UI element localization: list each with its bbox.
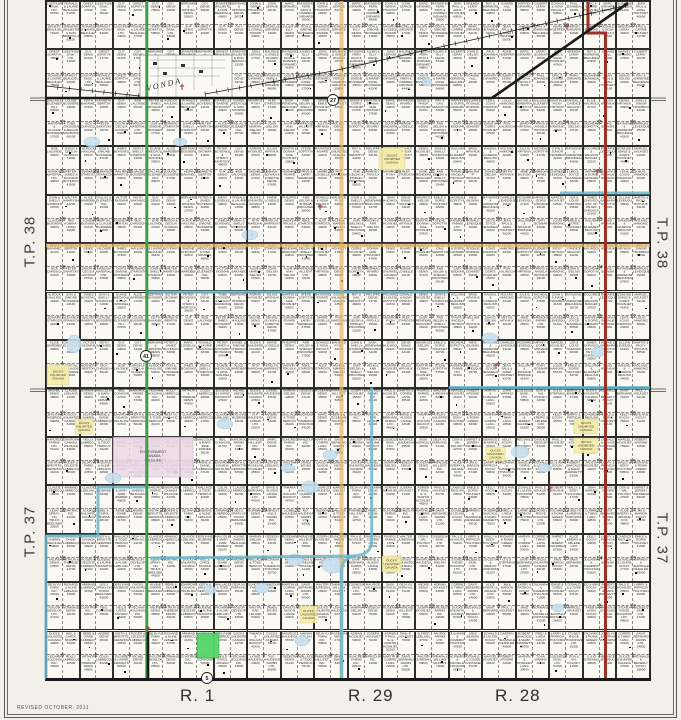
parcel-owner-name: BERNARD & RHONDA DENIS50900 [181,2,196,19]
parcel-owner-name: SUZANNE JEANNEAU34600 [584,74,599,84]
parcel-assessed-value: 52400 [365,448,381,451]
parcel-owner-name: EMILE & DORIS HOUNJET27200 [349,99,364,112]
parcel-quarter: MARC GIRNARD41600 [517,50,533,73]
farmstead-dot [537,571,539,573]
parcel-owner-name: ALICE WARDBERG43400 [181,267,196,277]
parcel-quarter: MAURICE SIELSKI35600 [416,341,432,364]
parcel-quarter: MICHELLE GIRNARD30800 [248,74,264,97]
parcel-assessed-value: 45900 [450,326,465,329]
section: DOLORES & WELDON BANGET20700ROSAIRE LEVE… [583,292,617,340]
parcel-owner-name: DALLAS & ELIZABETH HILL25300 [96,196,112,209]
parcel-quarter: HOLLY LABRECQUE40500 [63,655,79,678]
parcel-assessed-value: 31700 [584,106,599,109]
farmstead-dot [491,20,493,22]
parcel-owner-name: ENVIRONMENT CANADA WILDLIFE44700 [163,486,179,499]
parcel-quarter: ALVIN & MARIAN SIELSKI42600 [331,219,347,242]
section: ROSAIRE LEVESQUE35900HARVEY & DORIS GIRN… [516,340,550,388]
parcel-assessed-value: 46200 [398,177,414,180]
parcel-owner-name: DENIS & ROSELINE HOUNJET45300 [248,461,263,474]
farmstead-dot [93,478,95,480]
parcel-quarter: SAINT BERNARD FARMS LTD.34800 [633,632,649,655]
parcel-quarter: CHARLES LEVESQUE51400 [550,316,566,339]
section: REGINALD & BEVERLY KOCAY53700CANDICE REG… [516,437,550,485]
parcel-owner-name: JOSEPH HOUNJET45300 [349,389,364,399]
farmstead-dot [528,424,530,426]
parcel-quarter: ALVIN & ANN SIELSKI40300 [282,267,298,290]
farmstead-dot [92,214,94,216]
parcel-assessed-value: 49400 [349,445,364,448]
parcel-owner-name: WALLACE & TODD HEROUX52400 [215,583,230,596]
farmstead-dot [167,153,169,155]
parcel-assessed-value: 64500 [215,274,230,277]
parcel-quarter: RICHARD & ALINE LEBLANC57500 [163,632,179,655]
parcel-assessed-value: 52600 [264,590,280,593]
parcel-assessed-value: 52500 [550,203,565,206]
parcel-quarter: MARC LOISELLE62800 [181,341,197,364]
parcel-owner-name: LOUISE BUSSIERE47400 [163,170,179,180]
parcel-owner-name: ANN SIELSKI & SHELLY PROCHERA46300 [298,99,314,116]
parcel-quarter: ANN SIELSKI & SHELLY PROCHERA53400 [432,170,448,193]
parcel-quarter: BOB LALONDE59600 [47,147,63,170]
parcel-quarter: PAUL E. HOUNJET40500 [383,389,399,412]
parcel-assessed-value: 25300 [215,87,230,90]
parcel-assessed-value: 37000 [617,665,632,668]
parcel-owner-name: DEJA VU FARM INC.33000 [148,632,163,645]
section: JULIANNA & CAMERON THACHUK47500MIKE BILI… [449,631,483,679]
section: DALLAS & ELIZABETH HILL53000LOUISE BUSSI… [46,98,80,146]
parcel-owner-name: DONALD & LOUISE KOCAY69100 [483,632,498,645]
parcel-quarter: ALVINE SHERIN BEAULIEU36200 [148,583,164,606]
parcel-quarter: JOHN & JUNIOR TROMBICKI52600 [633,244,649,267]
parcel-owner-name: JOHN HUCHKOWSKI26100 [383,341,398,351]
parcel-owner-name: ROBERT SHACKLETON & MARK MARGETTS76200 [483,509,498,526]
parcel-owner-name: WALLY & EDDY HOLYNSKI48500 [450,413,465,426]
parcel-assessed-value: 43400 [432,61,448,64]
parcel-assessed-value: 43600 [163,35,179,38]
parcel-quarter: PAUL E. HOUNJET54200 [450,535,466,558]
parcel-assessed-value: 28700 [197,645,213,648]
parcel-assessed-value: 47500 [600,496,616,499]
parcel-assessed-value: 58000 [47,419,62,422]
parcel-owner-name: PAUL E. HOUNJET14000 [584,461,599,471]
parcel-quarter: RENE & DIANE LABRECQUE31700 [114,509,130,532]
parcel-quarter: DON & VAL POLISKY37400 [416,535,432,558]
parcel-quarter: JULIANNA & CAMERON THACHUK54200 [499,461,515,484]
parcel-owner-name: JOHN SIELSKI34700 [264,267,280,277]
parcel-quarter: DONALD & LOUISE KOCAY57100 [566,583,582,606]
parcel-owner-name: DALLAS & ELIZABETH HILL25800 [63,341,79,354]
parcel-quarter: JOHN LEPAGE48100 [264,2,280,25]
section: EMILE & DORIS HOUNJET27200MARTIN & DONNA… [348,98,382,146]
parcel-owner-name: CLAUDE LABRECQUE46200 [130,438,146,448]
parcel-owner-name: ROLAND HAMONIC20700 [633,219,649,229]
parcel-assessed-value: 32100 [231,419,247,422]
parcel-owner-name: JERLYNNE MCBRIDE20700 [215,632,230,642]
parcel-owner-name: BOB LALONDE37000 [148,219,163,229]
parcel-assessed-value: 48800 [315,129,330,132]
parcel-assessed-value: 17700 [248,57,263,60]
parcel-assessed-value: 25000 [483,426,498,429]
parcel-owner-name: NORMAND & MICHELLE FONTAINE41500 [533,606,549,623]
parcel-quarter: PARADISE HILL ENT. INC.35900 [298,535,314,558]
parcel-assessed-value: 34200 [349,593,364,596]
parcel-assessed-value: 75900 [148,9,163,12]
farmstead-dot [574,13,576,15]
parcel-owner-name: LEA & LOUIS HAMONIC33400 [483,244,498,257]
farmstead-dot [243,394,245,396]
parcel-owner-name: SUZANNE JEANNEAU54100 [483,25,498,35]
parcel-owner-name: JARRET & JEREMY VALDREUIL69100 [633,486,649,499]
parcel-owner-name: DON & SIMONE BUSSIERE36800 [114,267,129,280]
parcel-quarter: ROGOR DEVELOP. LTD.37100 [47,606,63,629]
farmstead-dot [622,478,624,480]
parcel-assessed-value: 40500 [383,396,398,399]
parcel-owner-name: ALICE WARDBERG40000 [163,147,179,157]
parcel-quarter: 101074108 SASK. LTD.14000 [114,25,130,48]
parcel-owner-name: RAYMOND FERN & DARREN GIRNARD44400 [398,74,414,91]
parcel-quarter: MARC GIRNARD50400 [600,2,616,25]
farmstead-dot [139,67,141,69]
farmstead-dot [504,522,506,524]
parcel-assessed-value: 76100 [517,471,532,474]
farmstead-dot [321,248,323,250]
parcel-quarter: SAINT BERNARD FARMS LTD.28500 [349,558,365,581]
parcel-owner-name: DUCKS UNLIMITED CANADA45700 [181,558,196,571]
parcel-owner-name: STEVE SOPOTYK32600 [298,293,314,303]
parcel-owner-name: ALROCK HAULING58700 [81,147,96,157]
parcel-quarter: LEA & LOUIS HAMONIC35600 [566,196,582,219]
parcel-quarter: DOLORES & WELDON BANGET32200 [584,147,600,170]
parcel-quarter: ANN SIELSKI & SHELLY PROCHERA40500 [432,316,448,339]
parcel-quarter: LIONEL HAUDEGAND50200 [365,461,381,484]
parcel-owner-name: DANIEL & SIMONE CHRUSCH42500 [181,244,196,257]
parcel-owner-name: LEO & JOYCE JEANNEAU50500 [566,316,582,329]
parcel-assessed-value: 61200 [432,523,448,526]
parcel-quarter: DAVID & ALISON LANGE44300 [282,606,298,629]
parcel-assessed-value: 37400 [465,471,481,474]
parcel-quarter: PAUL E. HOUNJET57900 [349,535,365,558]
parcel-assessed-value: 54100 [365,154,381,157]
farmstead-dot [520,646,522,648]
parcel-quarter: MARVIN & CORRIE LANG53000 [517,535,533,558]
parcel-assessed-value: 56200 [349,378,364,381]
parcel-owner-name: WILLIAM P. HRYNIUK42200 [465,316,481,329]
parcel-owner-name: JOHN & SHELLY STAROSTA36300 [231,219,247,232]
parcel-assessed-value: 45700 [432,351,448,354]
parcel-assessed-value: 76100 [298,665,314,668]
parcel-owner-name: ANN SIELSKI & SHELLY PROCHERA40500 [432,316,448,333]
parcel-quarter: WALLACE & TODD HEROUX40900 [197,486,213,509]
farmstead-dot [642,86,644,88]
parcel-assessed-value: 50100 [533,35,549,38]
parcel-assessed-value: 26100 [383,348,398,351]
parcel-assessed-value: 48000 [365,19,381,22]
parcel-quarter: PARADISE HILL ENT. LTD.38300 [298,122,314,145]
parcel-quarter: MARC DENIS44600 [383,99,399,122]
parcel-assessed-value: 76200 [633,371,649,374]
parcel-owner-name: PAUL JEANNEAU47200 [483,50,498,60]
parcel-owner-name: HANSON MATERIALS LTD.46000 [47,170,62,183]
parcel-owner-name: MARIE LOISELLE52100 [315,170,330,180]
parcel-owner-name: ADRIAN HOUNJET42000 [383,364,398,374]
parcel-quarter: JOHN & JUNIOR TROMBICKI33400 [633,99,649,122]
parcel-owner-name: NORMAN RIVARD34600 [365,267,381,277]
parcel-assessed-value: 42800 [63,593,79,596]
parcel-assessed-value: 52100 [197,300,213,303]
parcel-assessed-value: 40600 [114,500,129,503]
parcel-assessed-value: 42800 [432,254,448,257]
parcel-owner-name: PHILIPPE DENIS31700 [365,293,381,303]
parcel-assessed-value: 48100 [584,590,599,593]
parcel-quarter: MARCEL HOUNJET41100 [566,606,582,629]
parcel-quarter: EMILE & PHILIP HOUNJET52100 [416,99,432,122]
parcel-quarter: SUNCREST FARMS INC.82500 [349,655,365,678]
parcel-owner-name: RANDAL & CANDICE REGUSH42200 [566,244,582,257]
parcel-quarter: DEJA VU FARM INC.33000 [148,632,164,655]
section: 101155032 SASK. LTD.50500DON & VAL POLIS… [516,388,550,436]
parcel-quarter: ALEXANDRA GRANISCH23300 [63,316,79,339]
parcel-owner-name: ROSAIRE LEVESQUE35900 [517,341,532,351]
parcel-owner-name: MICHELLE GIRNARD32800 [315,74,330,84]
parcel-owner-name: JERLYNNE MCBRIDE32100 [231,413,247,423]
parcel-quarter: MARIAN SIELSKI53700 [298,632,314,655]
parcel-quarter: COLIN LABRECQUE50100 [114,438,130,461]
parcel-assessed-value: 75900 [517,520,532,523]
parcel-quarter: TUBB CROSSDALE & MEGAN MACDONALD69100 [63,122,79,145]
section: MICHEAL SOPOTYK56000MIKE BILINSKI42900HA… [449,340,483,388]
parcel-assessed-value: 35900 [416,426,431,429]
parcel-owner-name: MICHELLE GIRNARD33900 [264,25,280,35]
parcel-assessed-value: 52600 [163,662,179,665]
section: ROSEANNE DENIS45600PARADISE HILL ENT. IN… [314,388,348,436]
parcel-assessed-value: 34200 [499,445,515,448]
parcel-quarter: DENIS EMILE HOUNJET39200 [315,244,331,267]
parcel-assessed-value: 56000 [499,274,515,277]
parcel-owner-name: ROGOR DEVELOP. LTD.56200 [130,558,146,571]
parcel-assessed-value: 32200 [215,493,230,496]
parcel-owner-name: MARIE LOISELLE44800 [264,196,280,206]
parcel-owner-name: 101155032 SASK. LTD.54700 [550,655,565,668]
parcel-quarter: DEJA VU FARM INC.47800 [81,461,97,484]
parcel-assessed-value: 46000 [47,181,62,184]
section: DONALD & LOUISE KOCAY69100DARREN & JEANH… [482,631,516,679]
parcel-owner-name: HOLLY LABRECQUE55000 [81,438,96,448]
parcel-owner-name: MARVIN & CORRIE LANG25000 [483,413,498,430]
parcel-quarter: ALFRED LEBLANC47700 [416,632,432,655]
parcel-assessed-value: 70300 [465,545,481,548]
parcel-quarter: ROBERT KRUSHE34000 [499,655,515,678]
parcel-quarter: ALVIN & ANN SIELSKI30300 [365,219,381,242]
parcel-quarter: BOB LALONDE37000 [148,219,164,242]
parcel-quarter: PAUL J. HOUNJET55300 [499,606,515,629]
parcel-assessed-value: 42200 [197,593,213,596]
parcel-quarter: JULIEN & ELLY DENIS40000 [282,25,298,48]
parcel-owner-name: RENE & DIANE LABRECQUE48200 [63,535,79,548]
parcel-quarter: JULIANNA & CAMERON THACHUK47500 [450,632,466,655]
section: MARTIN & RICKY HRYNIUK45900RANDAL & CAND… [549,243,583,291]
parcel-quarter: GUY DENIS43600 [114,99,130,122]
parcel-owner-name: WILLIAM & ROSALIE BODNAR44100 [517,219,532,236]
parcel-owner-name: BOB LALONDE54100 [114,364,129,374]
parcel-assessed-value: 43400 [63,396,79,399]
farmstead-dot [591,285,593,287]
parcel-quarter: PETER JAMES & RICHARD BOYENKO41500 [63,170,79,193]
section: ALROCK HAULING41800DON & SIMONE BUSSIERE… [46,292,80,340]
parcel-owner-name: MAURICE & GISELE RIVARD38300 [398,50,414,63]
parcel-assessed-value: 48600 [617,620,632,623]
parcel-assessed-value: 37100 [148,542,163,545]
parcel-assessed-value: 25500 [248,593,263,596]
parcel-owner-name: ALEX STAROSTA48300 [315,219,330,229]
parcel-quarter: WANZOURA INC.52600 [264,583,280,606]
section: CLAUDE LEBLANC52500JERLYNNE MCBRIDE35600… [180,534,214,582]
parcel-owner-name: PARADISE HILL ENT. INC.38900 [248,438,263,451]
parcel-quarter: GEDEON DENIS37100 [298,389,314,412]
parcel-quarter: JAMES CHRUSCH EST. OF PETER CHRUSCH25000 [584,341,600,364]
parcel-owner-name: JOHN & VERNA THURSTON49800 [248,2,263,15]
section: RAYMOND & ADRIENNE BEAUREGARD49100CHARLE… [482,340,516,388]
parcel-assessed-value: 45900 [550,254,565,257]
parcel-quarter: WILLIAM & ROSALIE BODNAR43900 [600,316,616,339]
parcel-owner-name: ANN GELSKI & SHIRLEY PROCHERA40300 [432,122,448,139]
parcel-assessed-value: 52500 [450,274,465,277]
parcel-quarter: ED & ANN KOCAY84500 [550,461,566,484]
parcel-owner-name: DON & VAL POLISKY27000 [617,486,632,499]
parcel-quarter: KRISTAL RAE LELAND55700 [331,558,347,581]
parcel-quarter: MARVIN & CHARLENE LANG30900 [517,655,533,678]
section: ARMAND LABRECQUE41300LES-2 SPRAY-ON TRUC… [180,631,214,679]
parcel-quarter: JULIUS HRYNIUK36100 [600,244,616,267]
parcel-assessed-value: 52100 [315,177,330,180]
parcel-owner-name: ROSEANNE DENIS47000 [331,632,347,642]
parcel-owner-name: BRAD HRYNIUK47000 [600,364,616,374]
parcel-quarter: DENIS HOUNJET40900 [416,293,432,316]
parcel-assessed-value: 47600 [617,57,632,60]
parcel-owner-name: JOANNE HILL48300 [465,74,481,84]
farmstead-dot [207,255,209,257]
parcel-assessed-value: 27200 [130,300,146,303]
parcel-owner-name: MARC GIRNARD32800 [416,2,431,12]
parcel-assessed-value: 41400 [298,568,314,571]
parcel-owner-name: DONALD & LOUISE KOCAY62100 [533,461,549,474]
parcel-assessed-value: 30900 [197,80,213,83]
parcel-quarter: MALCOLM & MARY JANE ZIMMER25100 [215,535,231,558]
parcel-quarter: LOUISE BUSSIERE34300 [47,364,63,387]
section: MARVIN & CORRIE LANG53000CORRIE & TIMMY … [516,534,550,582]
parcel-quarter: SUZANNE JEANNEAU54100 [483,25,499,48]
parcel-owner-name: JIM & MARION KOCAY48100 [633,509,649,522]
parcel-owner-name: VICTOR SKOMAR43000 [81,341,96,351]
parcel-quarter: ALICE WARDBERG27200 [130,293,146,316]
farmstead-dot [453,182,455,184]
section: MICHEL DENIS48800CLAUDE LEBLANC43400JERL… [46,388,80,436]
farmstead-dot [475,12,477,14]
parcel-assessed-value: 43000 [349,84,364,87]
farmstead-dot [393,543,395,545]
parcel-quarter: ARTHUR & THERESE DENIS44700 [63,558,79,581]
section: BERNARD & RHONDA DENIS58000PETER & JAMES… [147,340,181,388]
parcel-quarter: MIKE BILINSKI40800 [465,632,481,655]
parcel-assessed-value: 43600 [633,471,649,474]
parcel-quarter: LARRY & PATRICIA HOLYNSKI70300 [465,535,481,558]
parcel-quarter: JULIANNA & CAMERON THACHUK20700 [264,558,280,581]
parcel-quarter: PARADISE HILL ENT. INC.76800 [398,606,414,629]
farmstead-dot [559,77,561,79]
farmstead-dot [190,199,192,201]
parcel-assessed-value: 40900 [416,300,431,303]
parcel-assessed-value: 79500 [566,423,582,426]
parcel-owner-name: ANDRE DENIS31500 [130,509,146,519]
parcel-quarter: HARMONIE FARMS LTD.41300 [450,364,466,387]
parcel-assessed-value: 49100 [633,206,649,209]
parcel-quarter: CORRIE & TIMMY LANG40800 [584,509,600,532]
parcel-quarter: OREST SOPATYK46000 [197,25,213,48]
section: DONALD & NOVA PROULX64500MAURICE PYSH628… [314,195,348,243]
parcel-quarter: DONALD & LOUISE KOCAY17700 [617,558,633,581]
section: MARC GIRNARD43700RAYMOND FERN DION & DAR… [281,1,315,49]
parcel-quarter: SASK. AGRICULTURE61200 [383,583,399,606]
parcel-owner-name: RONALD & LAURIE BEAULIEU46300 [148,244,163,257]
parcel-assessed-value: 54700 [231,80,247,83]
parcel-assessed-value: 57500 [383,448,398,451]
parcel-quarter: MARIE LOISELLE44800 [264,196,280,219]
parcel-assessed-value: 44300 [533,400,549,403]
parcel-quarter: MARTIAL & CLAUDE BUSSIERE41800 [96,219,112,242]
parcel-assessed-value: 54600 [398,157,414,160]
parcel-owner-name: ADRIEN P. PAUL E. & MARTIN HOUNJET51200 [383,632,398,652]
farmstead-dot [257,7,259,9]
parcel-assessed-value: 62800 [81,423,96,426]
parcel-quarter: RAYMOND RIVARD30300 [315,293,331,316]
parcel-assessed-value: 25300 [315,12,330,15]
parcel-assessed-value: 48900 [450,203,465,206]
parcel-assessed-value: 33000 [517,300,532,303]
parcel-owner-name: SUNCREST FARMS INC.25500 [248,583,263,596]
farmstead-dot [108,139,110,141]
parcel-assessed-value: 32600 [197,374,213,377]
parcel-quarter: CLAUDE LEBLANC53400 [163,438,179,461]
parcel-assessed-value: 41800 [96,229,112,232]
parcel-quarter: KENNETH BERTON47200 [163,316,179,339]
farmstead-dot [361,350,363,352]
parcel-quarter: DUCKS UNLIMITED CANADA39100 [264,632,280,655]
parcel-assessed-value: 25800 [432,19,448,22]
parcel-quarter: KELLY KOCAY34200 [499,438,515,461]
parcel-owner-name: WILLIAM & ROSALIE BODNAR45600 [465,244,481,257]
parcel-owner-name: EMILE & DORIS HOUNJET48200 [432,196,448,209]
parcel-owner-name: ROSEANNE DENIS50500 [416,461,431,471]
parcel-assessed-value: 36100 [130,662,146,665]
section: JOHN LEPAGE23300MAURICE & GISELE RIVARD3… [382,49,416,97]
parcel-assessed-value: 28100 [96,520,112,523]
parcel-assessed-value: 84500 [432,590,448,593]
parcel-assessed-value: 52400 [264,523,280,526]
parcel-owner-name: WALLY & EDDY HOLYNSKI59500 [617,461,632,474]
parcel-owner-name: DARREN & JEANHALEA DENGLER36400 [550,606,565,623]
parcel-owner-name: WALLACE & TODD HEROUX26100 [282,413,297,426]
parcel-owner-name: WANZOURA INC.14000 [365,655,381,665]
parcel-quarter: PARADISE HILL ENT. INC.58100 [315,655,331,678]
parcel-quarter: RAYMOND & ADRIENNE BEAUREGARD57900 [617,267,633,290]
parcel-owner-name: DONALD & NOVA PROULX62800 [550,2,565,15]
parcel-owner-name: MARTIN & RICKY HRYNIUK49100 [633,196,649,209]
farmstead-dot [603,115,605,117]
parcel-owner-name: BERNICE JENDRUCK35400 [600,655,616,665]
parcel-quarter: OREST SOPATYK59500 [148,25,164,48]
parcel-quarter: PHILIPPE DENIS48200 [282,341,298,364]
parcel-quarter: ROBERT SHACKLETON & MARK MARGETTS76200 [483,509,499,532]
parcel-owner-name: EVELYN BARRINGTON54100 [264,219,280,229]
